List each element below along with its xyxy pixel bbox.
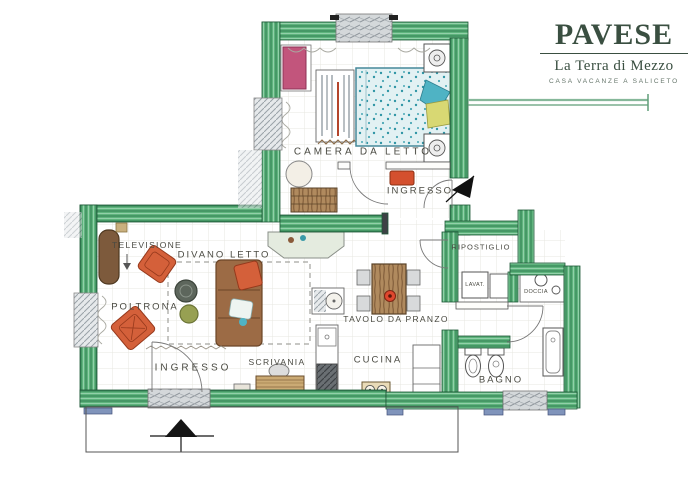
wall-segment xyxy=(262,22,280,100)
dining-chair xyxy=(357,296,370,311)
wall-segment xyxy=(564,266,580,408)
sofa-cushion-white xyxy=(229,298,254,319)
logo-divider xyxy=(540,53,688,54)
wall-segment xyxy=(80,205,97,295)
side-table-olive xyxy=(180,305,198,323)
wardrobe xyxy=(283,47,306,89)
tv-set xyxy=(116,223,127,232)
label-lavatrice: LAVAT. xyxy=(465,282,485,288)
partition-bedroom-hall xyxy=(338,162,350,169)
dresser xyxy=(291,188,337,212)
utility-cabinet xyxy=(490,274,510,298)
niche-dot-teal xyxy=(300,235,306,241)
exterior-shading xyxy=(238,150,262,208)
floor-plan-page: CAMERA DA LETTO INGRESSO TELEVISIONE DIV… xyxy=(0,0,700,500)
label-doccia: DOCCIA xyxy=(524,289,548,295)
wall-segment xyxy=(280,215,386,232)
sofa-bed xyxy=(216,260,263,346)
room-label-cucina: CUCINA xyxy=(354,355,402,366)
exterior-shading xyxy=(64,212,82,238)
dining-chair xyxy=(357,270,370,285)
wall-end-cap xyxy=(382,213,388,234)
wall-segment xyxy=(210,390,386,407)
bay-niche xyxy=(268,232,344,258)
room-label-ingresso-living: INGRESSO xyxy=(155,363,232,374)
bidet xyxy=(488,348,504,377)
shutter-mark xyxy=(389,15,398,20)
dining-chair xyxy=(407,296,420,311)
brand-tagline: CASA VACANZE A SALICETO xyxy=(538,78,690,85)
wall-segment xyxy=(386,392,503,409)
window-sill xyxy=(484,409,503,415)
room-label-ripostiglio: RIPOSTIGLIO xyxy=(452,243,511,252)
lamp-icon xyxy=(429,50,445,66)
wall-segment xyxy=(442,330,458,392)
wall-segment xyxy=(547,392,577,409)
shutter-mark xyxy=(330,15,339,20)
partition-bedroom-hall xyxy=(386,162,450,169)
brand-name: PAVESE xyxy=(538,20,690,50)
room-label-divano-letto: DIVANO LETTO xyxy=(178,250,271,261)
side-table-dark xyxy=(175,280,197,302)
room-label-camera-da-letto: CAMERA DA LETTO xyxy=(294,147,432,158)
wall-segment xyxy=(80,390,150,407)
partition-bath xyxy=(456,302,508,309)
hall-bench xyxy=(390,171,414,185)
wall-segment xyxy=(390,22,468,40)
main-door-threshold xyxy=(148,389,210,408)
open-closet xyxy=(316,70,354,142)
wall-segment xyxy=(510,263,565,275)
kitchen-counter-right xyxy=(413,345,440,397)
kitchen-sink xyxy=(312,288,344,314)
room-label-ingresso-bedroom: INGRESSO xyxy=(387,186,453,197)
pillow-yellow xyxy=(426,100,450,128)
garden-wall-line xyxy=(468,94,648,111)
wall-segment xyxy=(458,336,510,348)
bathtub xyxy=(543,328,563,376)
entrance-arrow-icon xyxy=(150,419,214,452)
window-sill xyxy=(84,408,112,414)
wall-segment xyxy=(450,38,468,178)
living-window-left xyxy=(74,293,98,347)
oven xyxy=(317,364,337,393)
window-sill xyxy=(387,409,403,415)
wall-segment xyxy=(262,148,280,222)
room-label-televisione: TELEVISIONE xyxy=(112,240,182,250)
room-label-scrivania: SCRIVANIA xyxy=(249,357,306,367)
wall-segment xyxy=(508,272,518,302)
kitchen-counter-left xyxy=(316,325,338,395)
brand-logo: PAVESE La Terra di Mezzo CASA VACANZE A … xyxy=(538,20,690,85)
sofa-cushion-teal xyxy=(239,318,247,326)
room-label-bagno: BAGNO xyxy=(479,375,523,386)
bedroom-window-left xyxy=(254,98,282,150)
nightstand-top xyxy=(424,44,450,72)
toilet xyxy=(465,348,481,377)
wall-segment xyxy=(80,205,262,222)
room-label-poltrona: POLTRONA xyxy=(111,302,179,313)
niche-dot-brown xyxy=(288,237,294,243)
rear-door-threshold xyxy=(503,391,547,410)
room-label-tavolo-da-pranzo: TAVOLO DA PRANZO xyxy=(343,314,449,324)
brand-subtitle: La Terra di Mezzo xyxy=(538,58,690,75)
bedroom-window-balcony xyxy=(336,14,392,42)
window-sill xyxy=(548,409,565,415)
round-stool xyxy=(286,161,312,187)
dining-chair xyxy=(407,270,420,285)
